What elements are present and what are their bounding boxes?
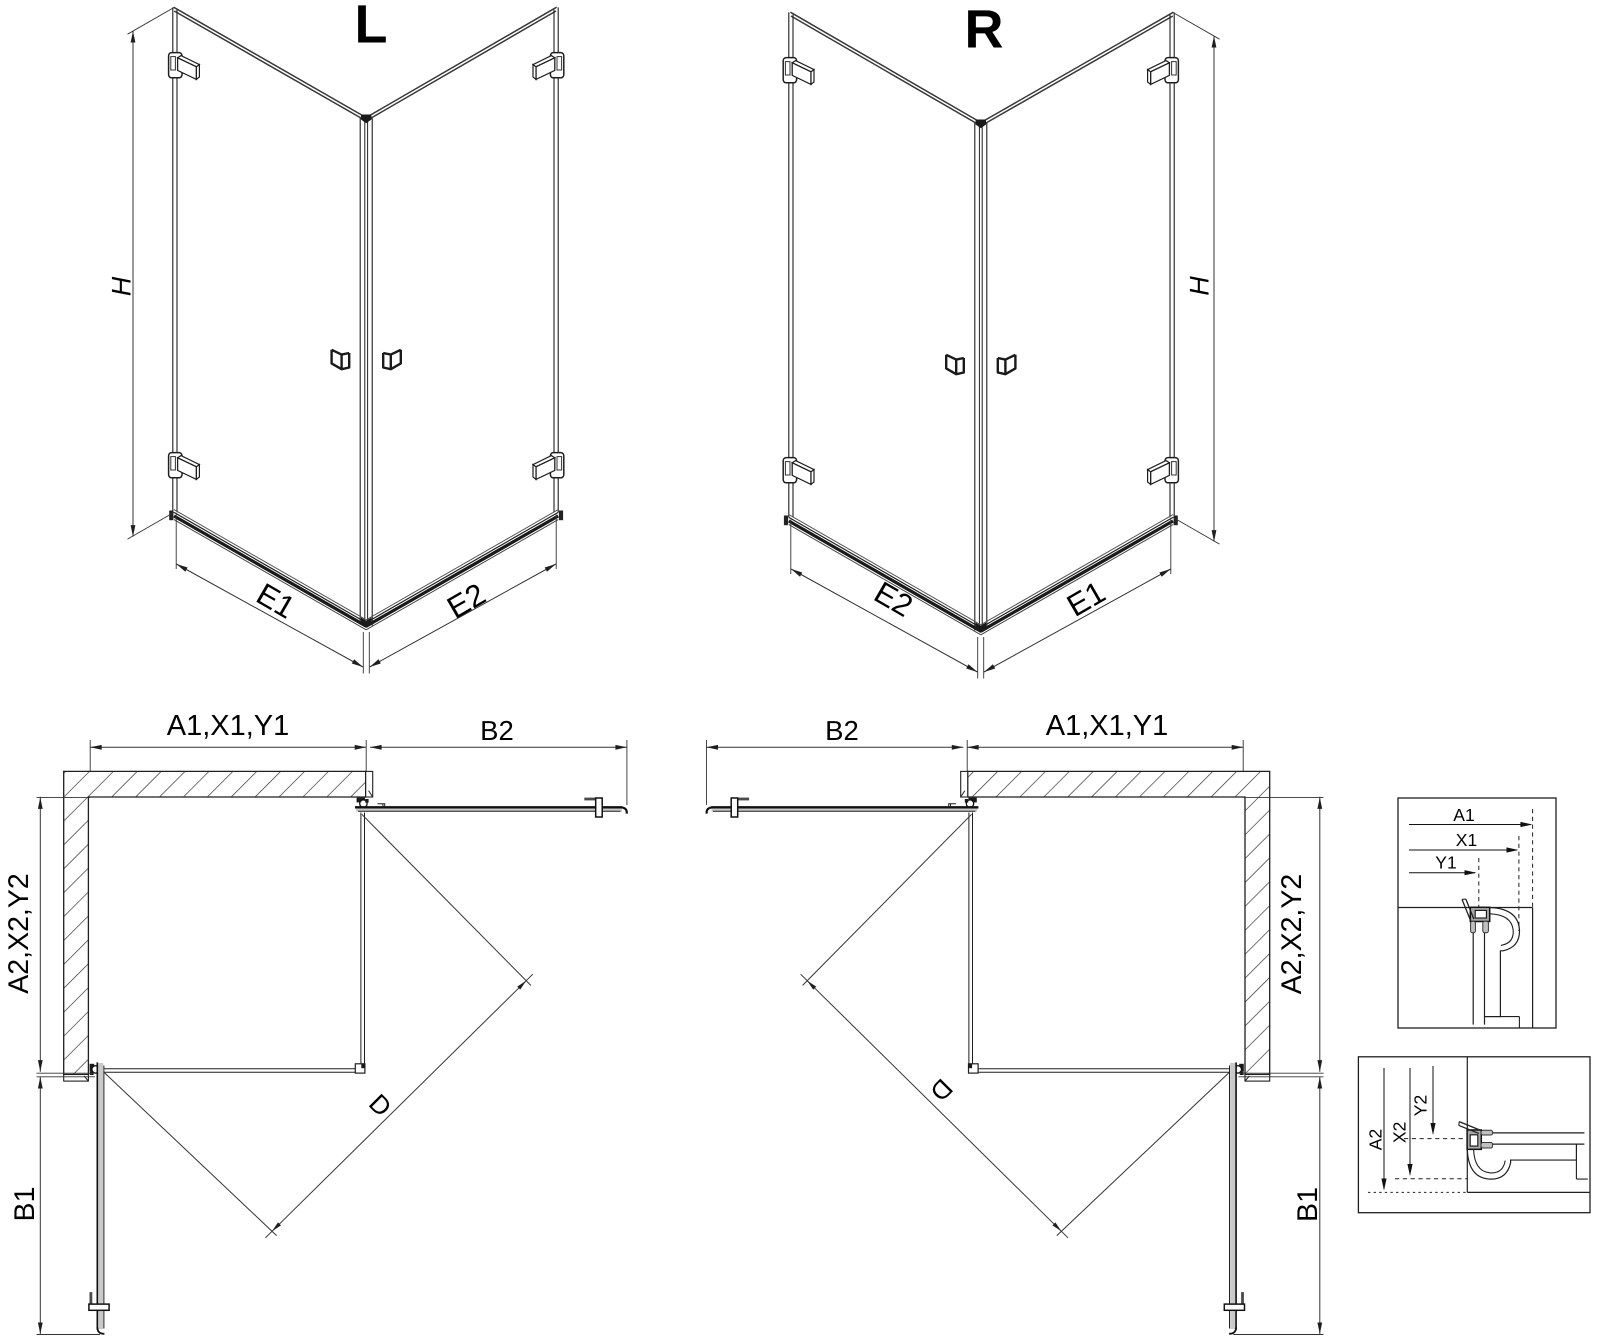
svg-text:H: H [107,276,137,296]
svg-text:R: R [965,0,1004,60]
svg-text:Y1: Y1 [1435,852,1456,872]
svg-text:X1: X1 [1456,830,1477,850]
svg-text:H: H [1185,276,1215,296]
svg-text:X2: X2 [1390,1122,1410,1143]
svg-text:B2: B2 [825,715,859,746]
svg-text:A2,X2,Y2: A2,X2,Y2 [1276,874,1308,994]
svg-text:A2: A2 [1365,1129,1385,1150]
svg-text:A1,X1,Y1: A1,X1,Y1 [167,710,290,742]
svg-text:A1,X1,Y1: A1,X1,Y1 [1046,710,1169,742]
svg-text:B2: B2 [480,715,514,746]
svg-text:A1: A1 [1453,805,1474,825]
svg-text:Y2: Y2 [1410,1095,1430,1116]
svg-text:B1: B1 [9,1187,41,1222]
svg-text:A2,X2,Y2: A2,X2,Y2 [3,873,35,993]
svg-text:L: L [355,0,388,55]
svg-text:B1: B1 [1292,1187,1324,1222]
